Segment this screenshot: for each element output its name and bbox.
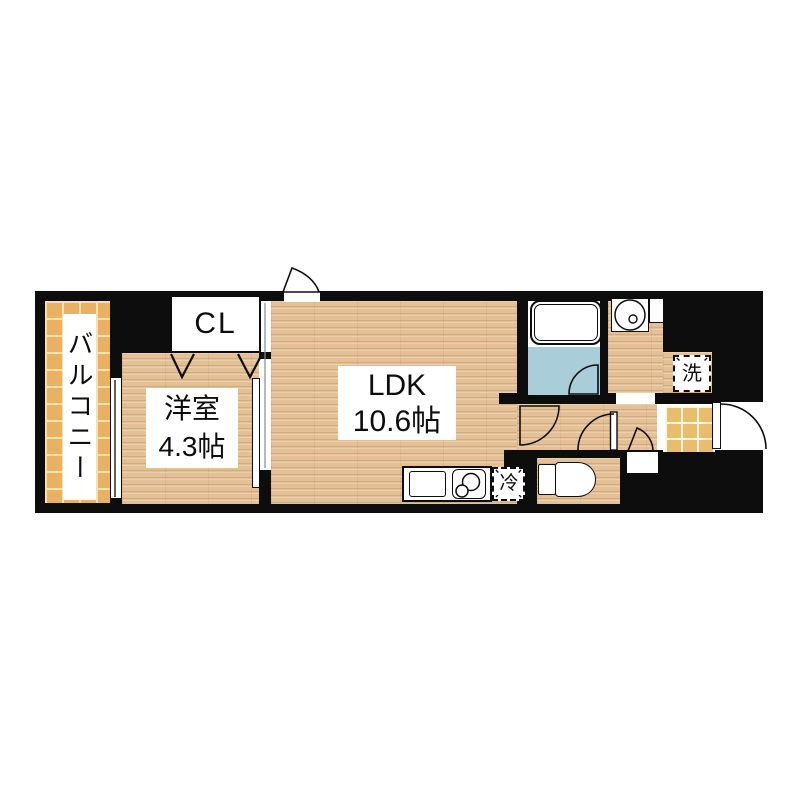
closet-box: CL — [170, 295, 261, 353]
ldk-top-door-swing — [283, 268, 319, 292]
washer-label: 洗 — [679, 362, 705, 386]
entrance-tiles — [663, 404, 715, 452]
washroom-door-opening — [616, 393, 655, 404]
western-room-label: 洋室 4.3帖 — [146, 388, 238, 468]
western-room-size: 4.3帖 — [146, 428, 238, 466]
wall-stub-ldk — [499, 393, 520, 404]
ldk-label: LDK 10.6帖 — [338, 366, 456, 440]
toilet-tank — [538, 464, 556, 495]
ldk-size: 10.6帖 — [338, 404, 456, 440]
kitchen-sink — [409, 471, 446, 497]
floor-plan: CL — [0, 0, 800, 800]
bathtub-inner-rim — [534, 304, 598, 341]
hallway-floor — [517, 404, 657, 450]
ldk-top-door-opening — [284, 292, 320, 302]
wall-stub-toilet — [504, 450, 518, 468]
refrigerator-label: 冷 — [497, 473, 521, 495]
washbasin-counter — [611, 298, 649, 332]
balcony-window — [111, 378, 121, 498]
washbasin-side-counter — [649, 298, 664, 323]
partition-stop-tick — [259, 352, 271, 359]
toilet-bowl — [555, 462, 596, 497]
closet-label: CL — [194, 307, 236, 341]
front-door-leaf — [712, 402, 721, 449]
gas-stove — [452, 469, 486, 499]
bathtub — [530, 300, 602, 345]
partition-wall-stub — [259, 470, 271, 505]
sliding-door-leaf — [252, 378, 260, 488]
ldk-name: LDK — [338, 368, 456, 404]
shoe-cabinet — [627, 452, 658, 473]
balcony-label: バルコニー — [63, 314, 96, 500]
western-room-name: 洋室 — [146, 390, 238, 428]
bathroom-floor — [528, 347, 600, 395]
